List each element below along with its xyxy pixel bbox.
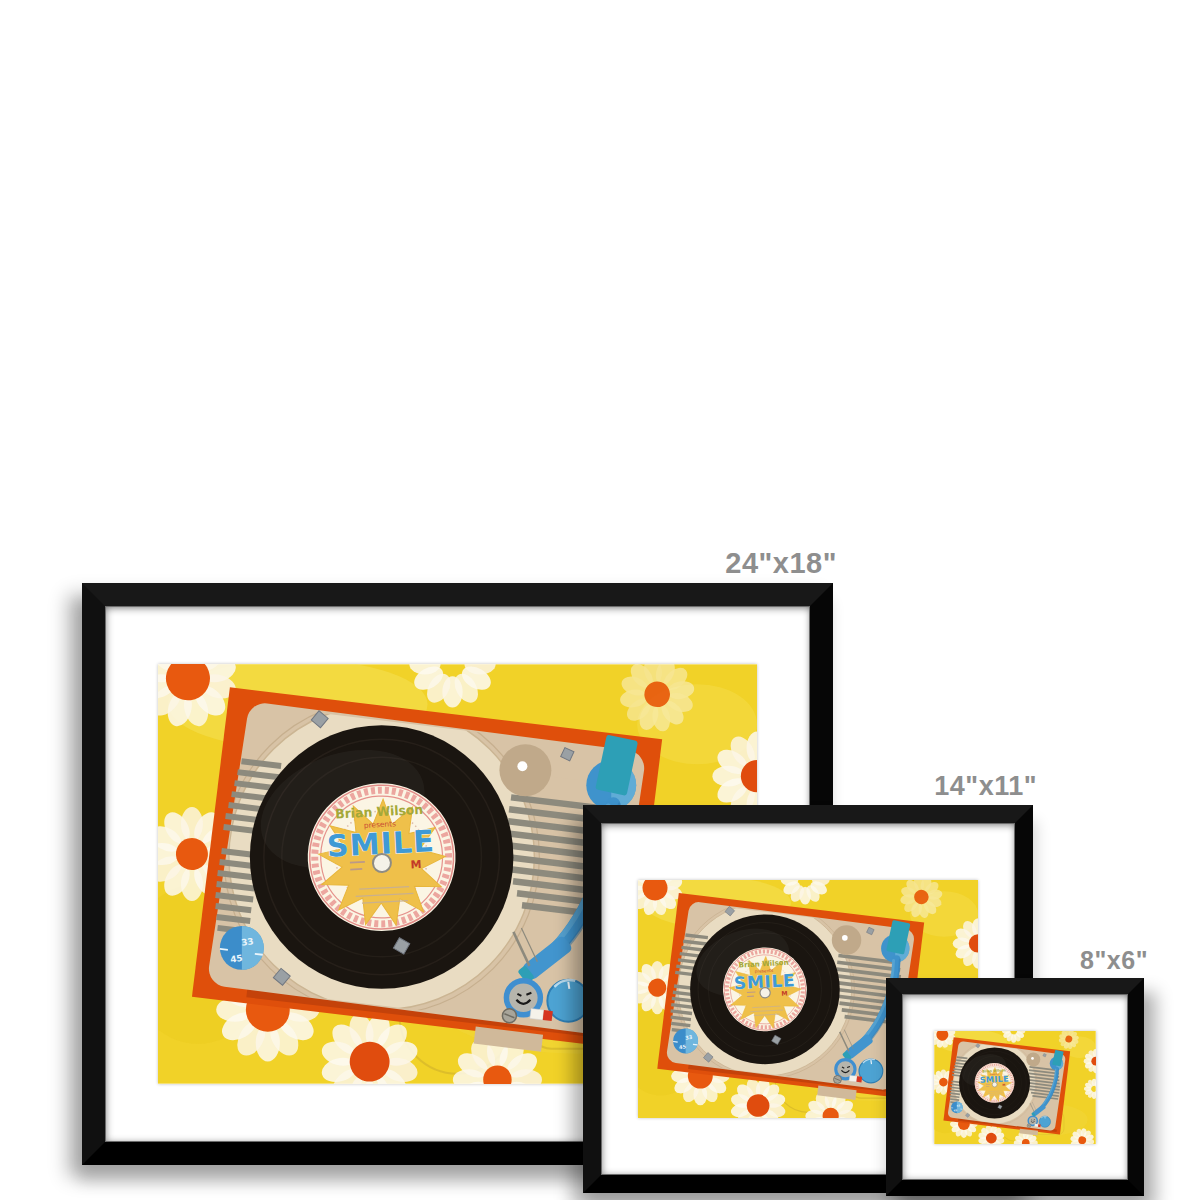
picture-frame-8x6 [886, 978, 1144, 1196]
size-label-24x18: 24"x18" [725, 549, 837, 578]
product-mockup: Brian Wilson presents SMILE M [0, 0, 1200, 1200]
artwork-print-8x6 [934, 1031, 1096, 1144]
size-label-14x11: 14"x11" [934, 773, 1037, 800]
mat-8x6 [902, 994, 1128, 1180]
size-label-8x6: 8"x6" [1080, 948, 1148, 973]
framed-print-8x6: 8"x6" [886, 978, 1144, 1196]
